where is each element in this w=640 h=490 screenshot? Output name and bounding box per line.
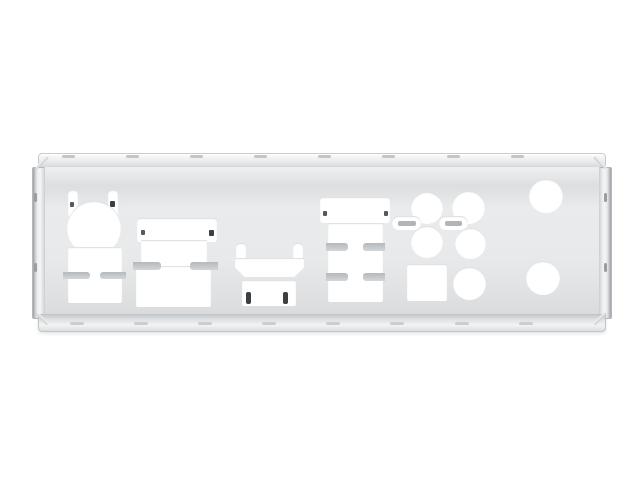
lan-usb-body-cutout bbox=[328, 223, 383, 302]
flange-notch bbox=[382, 155, 395, 158]
product-photo-io-shield: Silver stainless-steel motherboard I/O s… bbox=[0, 0, 640, 480]
plate-face bbox=[44, 167, 600, 315]
flange-notch bbox=[326, 322, 340, 325]
strip-bump bbox=[34, 193, 37, 202]
usb-retention-tab bbox=[363, 273, 385, 281]
spring-clip-mark bbox=[384, 211, 388, 216]
usb-retention-tab bbox=[133, 262, 161, 270]
flange-notch bbox=[318, 155, 331, 158]
audio-jack-cutout bbox=[453, 267, 486, 300]
strip-bump bbox=[604, 263, 607, 272]
grounding-clip bbox=[283, 292, 288, 304]
spring-clip-mark bbox=[323, 211, 327, 216]
spring-clip-mark bbox=[70, 202, 74, 207]
antenna-hole-cutout bbox=[526, 261, 560, 295]
usb-retention-tab bbox=[363, 243, 385, 251]
vent-tab bbox=[445, 221, 462, 226]
flange-notch bbox=[511, 155, 524, 158]
flange-notch bbox=[519, 322, 533, 325]
usb-display-top-cutout bbox=[137, 218, 217, 242]
usb-retention-tab bbox=[100, 272, 126, 279]
flange-notch bbox=[390, 322, 404, 325]
spring-clip-mark bbox=[141, 230, 145, 235]
usb-display-bottom-cutout bbox=[136, 266, 211, 307]
flange-notch bbox=[254, 155, 267, 158]
flange-notch bbox=[262, 322, 276, 325]
flange-notch bbox=[447, 155, 460, 158]
spring-clip-mark bbox=[209, 230, 214, 236]
usb-retention-tab bbox=[190, 262, 218, 270]
flange-notch bbox=[190, 155, 203, 158]
lan-port-cutout bbox=[320, 197, 390, 223]
photo-caption: Silver stainless-steel motherboard I/O s… bbox=[6, 460, 640, 490]
flange-notch bbox=[198, 322, 212, 325]
flange-notch bbox=[62, 155, 75, 158]
strip-bump bbox=[604, 193, 607, 202]
flange-notch bbox=[70, 322, 84, 325]
strip-bump bbox=[34, 263, 37, 272]
antenna-hole-cutout bbox=[529, 179, 563, 213]
spdif-square-cutout bbox=[407, 264, 447, 301]
flange-notch bbox=[126, 155, 139, 158]
usb-retention-tab bbox=[326, 243, 348, 251]
flange-notch bbox=[455, 322, 469, 325]
audio-jack-cutout bbox=[411, 226, 443, 258]
vent-tab bbox=[398, 221, 416, 226]
flange-notch bbox=[134, 322, 148, 325]
hdmi-port-cutout bbox=[235, 258, 304, 277]
usb-retention-tab bbox=[63, 272, 90, 279]
audio-jack-cutout bbox=[455, 228, 486, 259]
grounding-clip bbox=[246, 292, 251, 304]
usb-retention-tab bbox=[326, 273, 348, 281]
